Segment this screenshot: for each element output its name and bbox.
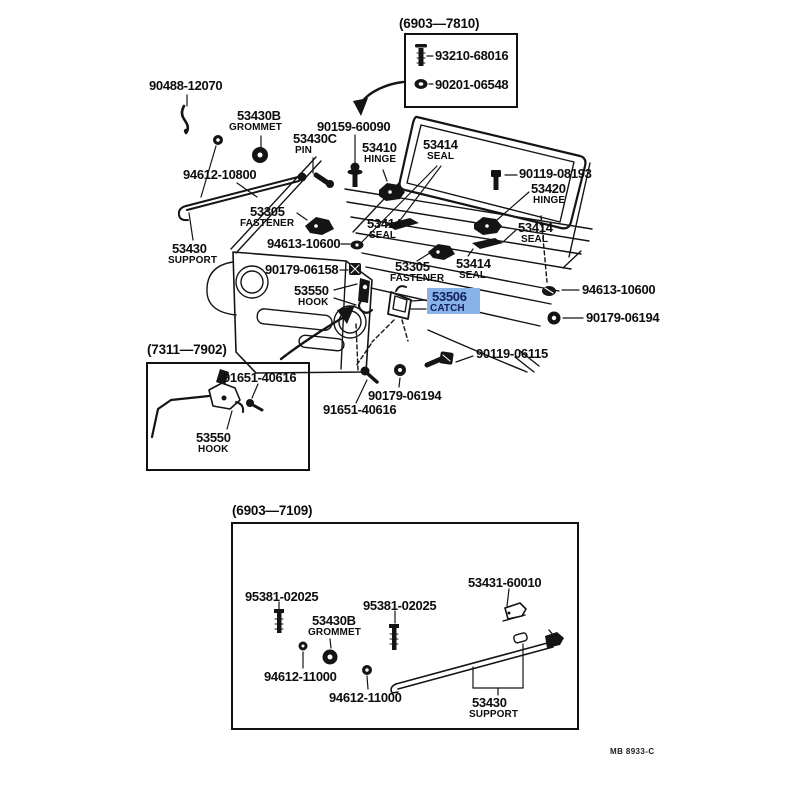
part-number: 90179-06158 bbox=[265, 263, 338, 277]
part-number: 53430BGROMMET bbox=[312, 614, 361, 638]
pin-icon bbox=[316, 175, 334, 188]
part-number: 90488-12070 bbox=[149, 79, 222, 93]
part-number: 53431-60010 bbox=[468, 576, 541, 590]
part-number: 95381-02025 bbox=[245, 590, 318, 604]
inset-left-title: (7311—7902) bbox=[147, 343, 227, 358]
inset-reference-arrow bbox=[353, 82, 403, 116]
part-number: 53305FASTENER bbox=[395, 260, 444, 284]
part-number: 91651-40616 bbox=[323, 403, 396, 417]
parts-diagram-page: (6903—7810) 93210-68016 90201-06548 (731… bbox=[0, 0, 800, 800]
part-number: 53410HINGE bbox=[362, 141, 397, 165]
part-number: 91651-40616 bbox=[223, 371, 296, 385]
screw-washer-icon bbox=[348, 163, 363, 188]
catch-icon bbox=[388, 286, 411, 319]
part-number: 95381-02025 bbox=[363, 599, 436, 613]
part-number: 53550HOOK bbox=[294, 284, 329, 308]
part-number: 53420HINGE bbox=[531, 182, 566, 206]
inset-bottom-box bbox=[231, 522, 579, 730]
part-number: 93210-68016 bbox=[435, 49, 508, 63]
part-number: 53430CPIN bbox=[293, 132, 337, 156]
part-number: 90179-06194 bbox=[586, 311, 659, 325]
part-number: 94612-10800 bbox=[183, 168, 256, 182]
part-number: 90119-06115 bbox=[476, 347, 548, 361]
part-number: 53414SEAL bbox=[367, 217, 402, 241]
inset-top-box bbox=[404, 33, 518, 108]
grommet-icon bbox=[213, 135, 268, 163]
bolt-icon bbox=[491, 170, 501, 190]
part-number: 94613-10600 bbox=[582, 283, 655, 297]
part-number: 53305FASTENER bbox=[250, 205, 294, 229]
part-number: 53430SUPPORT bbox=[472, 696, 518, 720]
part-number: 90201-06548 bbox=[435, 78, 508, 92]
clip-icon bbox=[182, 106, 188, 133]
inset-top-title: (6903—7810) bbox=[399, 17, 479, 32]
part-number: 53430BGROMMET bbox=[237, 109, 282, 133]
part-number: 90179-06194 bbox=[368, 389, 441, 403]
part-number: 53550HOOK bbox=[196, 431, 231, 455]
part-number: 94612-11000 bbox=[264, 670, 337, 684]
part-number: 53414SEAL bbox=[456, 257, 491, 281]
hood-open-arrow bbox=[281, 305, 355, 359]
page-code: MB 8933-C bbox=[610, 748, 655, 756]
part-number: 90119-08193 bbox=[519, 167, 592, 181]
part-number: 94612-11000 bbox=[329, 691, 402, 705]
highlighted-part-number[interactable]: 53506CATCH bbox=[432, 290, 467, 314]
part-number: 53414SEAL bbox=[518, 221, 553, 245]
inset-bottom-title: (6903—7109) bbox=[232, 504, 312, 519]
part-number: 94613-10600 bbox=[267, 237, 340, 251]
part-number: 53430SUPPORT bbox=[172, 242, 217, 266]
bolt-icon bbox=[361, 351, 454, 382]
part-number: 53414SEAL bbox=[423, 138, 458, 162]
